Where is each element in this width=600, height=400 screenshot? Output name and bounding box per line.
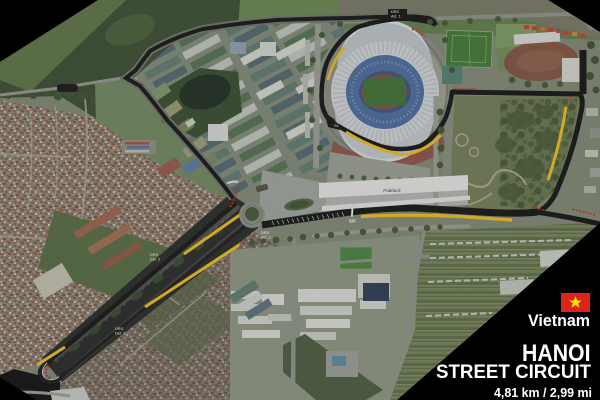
svg-text:4,81 km / 2,99 mi: 4,81 km / 2,99 mi xyxy=(494,386,592,400)
svg-text:Vietnam: Vietnam xyxy=(528,311,590,330)
svg-text:STREET CIRCUIT: STREET CIRCUIT xyxy=(436,361,591,383)
